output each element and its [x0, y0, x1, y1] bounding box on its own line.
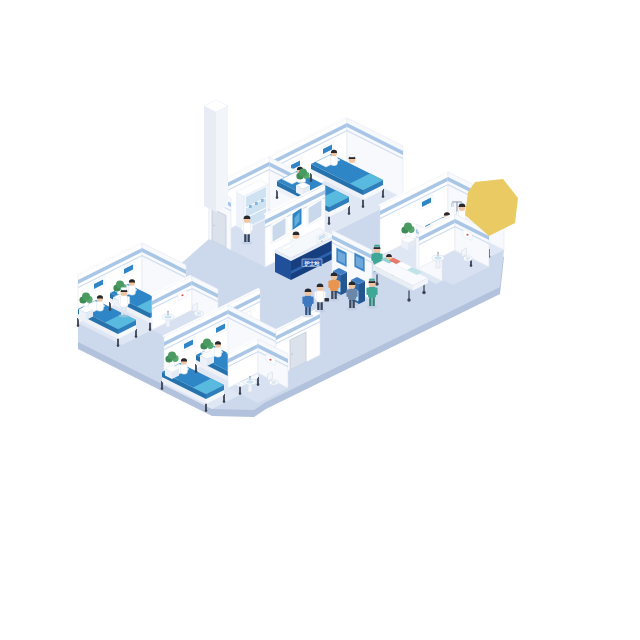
hospital-illustration-stage: 护士站 — [0, 0, 640, 640]
service-column — [204, 100, 228, 212]
hospital-isometric-illustration: 护士站 — [0, 0, 640, 640]
reception-sign-text: 护士站 — [304, 260, 320, 267]
